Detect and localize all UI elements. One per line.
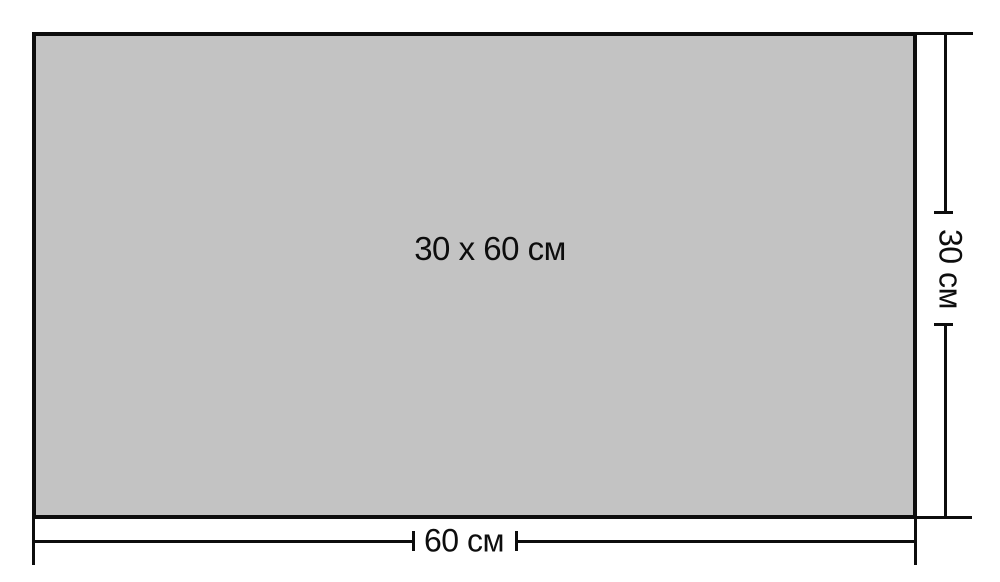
height-dimension-line-lower [944, 326, 947, 516]
width-dimension-label: 60 см [424, 523, 504, 560]
dimensioned-rectangle [32, 32, 917, 519]
width-dimension-line-right [517, 540, 916, 543]
height-dimension-tick-upper [934, 211, 953, 214]
width-dimension-tick-left [412, 531, 415, 551]
rectangle-size-label: 30 x 60 см [414, 230, 566, 268]
dimension-diagram: 30 x 60 см 30 см 60 см [0, 0, 1000, 582]
bottom-edge-extension-line [917, 516, 972, 519]
width-dimension-line-left [33, 540, 412, 543]
height-dimension-label: 30 см [932, 229, 969, 309]
height-dimension-line-upper [944, 35, 947, 212]
